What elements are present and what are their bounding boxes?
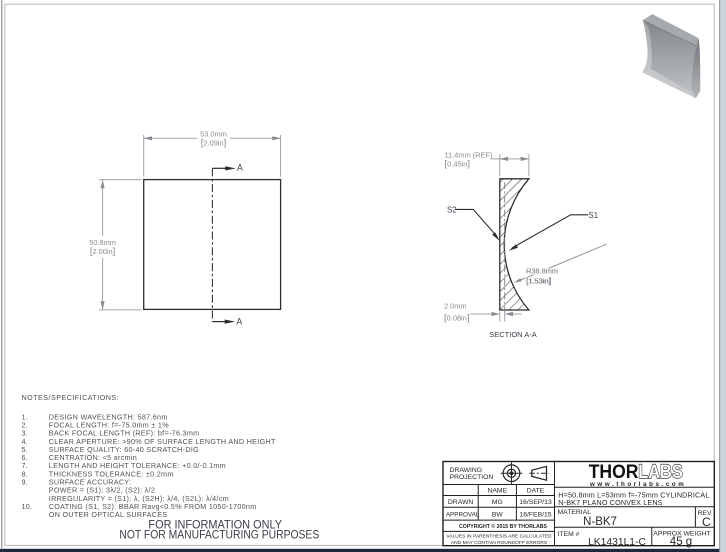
svg-text:LK1431L1-C: LK1431L1-C xyxy=(588,537,646,548)
svg-text:VALUES IN PARENTHESIS ARE CALC: VALUES IN PARENTHESIS ARE CALCULATED xyxy=(446,534,552,540)
svg-text:THOR: THOR xyxy=(589,460,639,482)
svg-text:C: C xyxy=(702,515,711,529)
svg-text:PROJECTION: PROJECTION xyxy=(450,474,494,481)
svg-text:AND MAY CONTAIN ROUNDOFF ERROR: AND MAY CONTAIN ROUNDOFF ERRORS xyxy=(451,540,548,546)
svg-text:R38.8mm: R38.8mm xyxy=(526,267,558,276)
svg-text:A: A xyxy=(237,162,243,172)
svg-text:[0.08in]: [0.08in] xyxy=(444,313,469,324)
svg-text:MG: MG xyxy=(492,499,503,506)
svg-text:ITEM #: ITEM # xyxy=(558,531,580,538)
svg-text:NOTES/SPECIFICATIONS:: NOTES/SPECIFICATIONS: xyxy=(22,393,120,402)
svg-text:[2.00in]: [2.00in] xyxy=(90,246,115,257)
svg-text:ON OUTER OPTICAL SURFACES: ON OUTER OPTICAL SURFACES xyxy=(49,510,168,519)
svg-text:APPROVAL: APPROVAL xyxy=(446,511,480,518)
svg-text:S2: S2 xyxy=(447,206,457,215)
svg-text:BW: BW xyxy=(492,512,504,519)
svg-text:16/FEB/15: 16/FEB/15 xyxy=(519,512,551,519)
svg-text:[1.53in]: [1.53in] xyxy=(526,276,551,287)
svg-text:www.thorlabs.com: www.thorlabs.com xyxy=(589,481,686,488)
svg-text:DATE: DATE xyxy=(527,488,545,495)
svg-text:N-BK7: N-BK7 xyxy=(583,516,617,528)
svg-text:DRAWING: DRAWING xyxy=(450,467,483,474)
svg-text:[0.45in]: [0.45in] xyxy=(445,158,470,169)
svg-text:SECTION A-A: SECTION A-A xyxy=(489,330,537,339)
svg-text:16/SEP/13: 16/SEP/13 xyxy=(519,499,552,506)
svg-text:10.: 10. xyxy=(22,502,33,511)
svg-text:DRAWN: DRAWN xyxy=(448,499,474,506)
svg-text:N-BK7 PLANO CONVEX LENS: N-BK7 PLANO CONVEX LENS xyxy=(558,498,662,507)
svg-text:NAME: NAME xyxy=(487,488,507,495)
svg-text:45 g: 45 g xyxy=(670,536,692,548)
svg-text:2.0mm: 2.0mm xyxy=(444,302,467,311)
svg-text:9.: 9. xyxy=(22,478,29,487)
svg-text:NOT FOR MANUFACTURING PURPOSES: NOT FOR MANUFACTURING PURPOSES xyxy=(119,529,319,542)
svg-text:[2.09in]: [2.09in] xyxy=(201,137,226,148)
svg-text:LABS: LABS xyxy=(638,461,683,483)
svg-text:A: A xyxy=(236,316,242,326)
svg-text:S1: S1 xyxy=(589,211,599,220)
svg-text:COPYRIGHT © 2015 BY THORLABS: COPYRIGHT © 2015 BY THORLABS xyxy=(459,523,547,530)
